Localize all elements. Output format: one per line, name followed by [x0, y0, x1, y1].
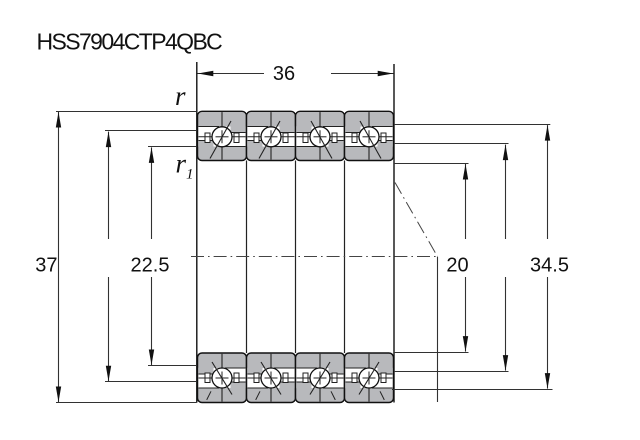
- svg-text:r: r: [175, 81, 186, 111]
- svg-text:36: 36: [273, 63, 295, 85]
- svg-text:37: 37: [35, 255, 57, 277]
- svg-text:20: 20: [446, 255, 468, 277]
- svg-text:HSS7904CTP4QBC: HSS7904CTP4QBC: [37, 29, 223, 55]
- svg-text:34.5: 34.5: [530, 255, 569, 277]
- svg-text:22.5: 22.5: [131, 255, 170, 277]
